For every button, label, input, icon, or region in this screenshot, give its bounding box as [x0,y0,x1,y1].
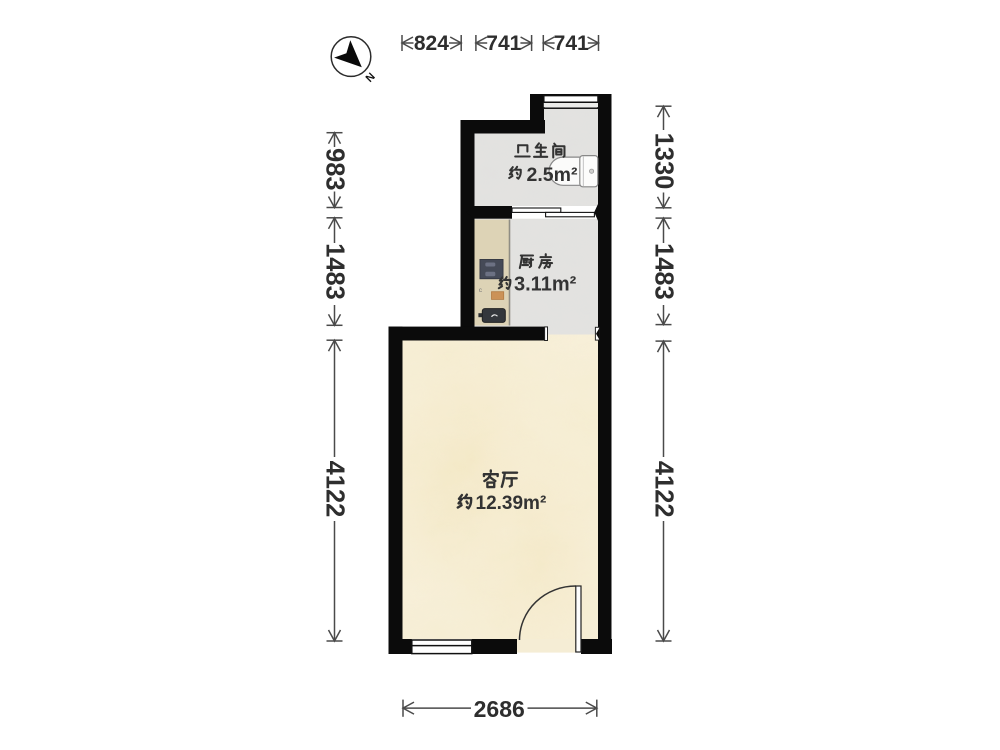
svg-text:2.5m²: 2.5m² [527,164,578,186]
svg-text:2686: 2686 [474,696,525,722]
svg-text:4122: 4122 [650,461,678,518]
svg-text:1483: 1483 [650,243,678,300]
svg-text:4122: 4122 [321,461,349,518]
svg-text:3.11m²: 3.11m² [514,274,577,296]
svg-text:824: 824 [414,32,449,55]
svg-text:741: 741 [554,32,589,55]
svg-text:1330: 1330 [650,133,678,190]
svg-text:983: 983 [321,148,349,191]
svg-text:1483: 1483 [321,243,349,300]
svg-text:12.39m²: 12.39m² [476,493,547,514]
svg-text:741: 741 [486,32,521,55]
